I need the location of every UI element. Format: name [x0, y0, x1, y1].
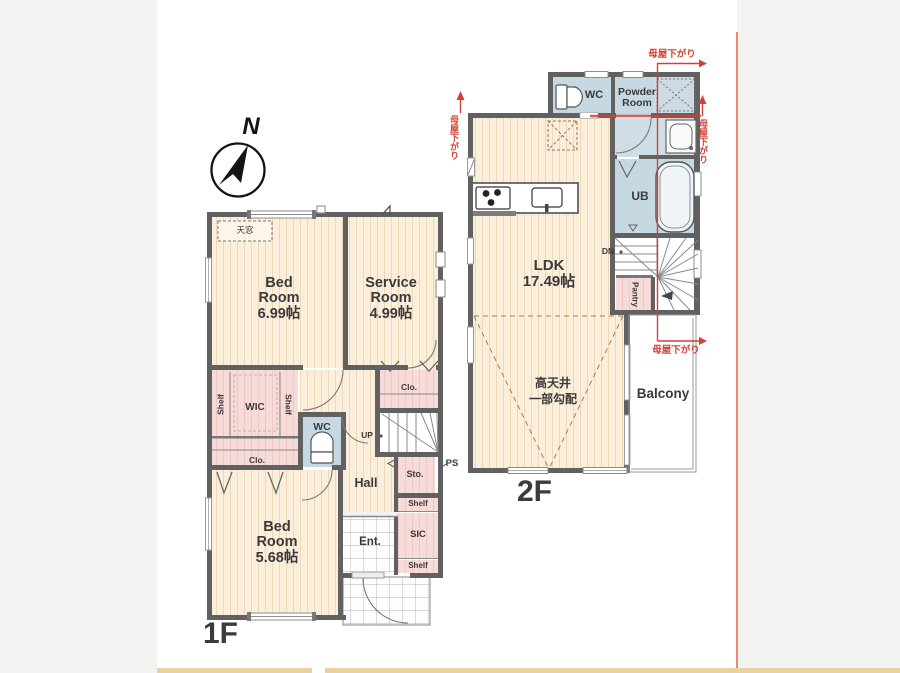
wic-label: WIC — [225, 400, 285, 417]
high-ceiling-line1: 高天井 — [535, 376, 571, 392]
service-room-label: Service Room 4.99帖 — [342, 260, 440, 338]
porch-step — [352, 572, 384, 578]
up-label: UP — [352, 429, 382, 442]
shelf-lower-label: Shelf — [392, 559, 444, 573]
ldk-size: 17.49帖 — [523, 274, 576, 290]
roof-lowering-top: 母屋下がり — [630, 48, 714, 62]
ldk-label: LDK 17.49帖 — [489, 251, 609, 297]
pantry-label: Pantry — [628, 273, 641, 317]
closet-right-label: Clo. — [379, 380, 439, 395]
roof-lowering-left: 母屋下がり — [448, 115, 461, 177]
hall-label: Hall — [336, 474, 396, 493]
high-ceiling-label: 高天井 一部勾配 — [493, 369, 613, 415]
pipe-space-label: PS — [437, 456, 467, 472]
skylight-label: 天窓 — [217, 222, 273, 239]
service-size: 4.99帖 — [370, 307, 413, 323]
right-edge-orange-line — [736, 32, 738, 672]
ldk-name: LDK — [534, 258, 565, 274]
powder-room-label: Powder Room — [609, 83, 665, 113]
bedroom1-size: 6.99帖 — [258, 307, 301, 323]
bedroom1-line1: Bed — [265, 276, 292, 292]
bathtub-icon — [656, 162, 694, 232]
shelf-right-label: Shelf — [282, 385, 295, 425]
entrance-label: Ent. — [343, 533, 397, 552]
wc1f-label: WC — [302, 420, 342, 436]
floor1-title: 1F — [203, 618, 283, 656]
sic-label: SIC — [392, 527, 444, 544]
compass-north-label: N — [236, 112, 266, 142]
hall-strip-area — [341, 370, 376, 455]
ub-label: UB — [619, 186, 661, 206]
shelf-upper-label: Shelf — [392, 497, 444, 511]
toilet-1f-icon — [311, 432, 333, 463]
closet-left-label: Clo. — [227, 453, 287, 468]
floor-plan-drawing — [0, 0, 900, 673]
roof-lowering-bottom: 母屋下がり — [634, 344, 718, 358]
bedroom2-size: 5.68帖 — [256, 551, 299, 567]
bedroom2-line1: Bed — [263, 520, 290, 536]
high-ceiling-line2: 一部勾配 — [529, 392, 577, 408]
service-line1: Service — [365, 276, 417, 292]
bottom-edge-tan-strip — [157, 668, 312, 673]
washing-machine-icon — [666, 120, 696, 153]
floor2-title: 2F — [517, 476, 597, 514]
bedroom1-line2: Room — [258, 291, 299, 307]
floor-plan-page: N 天窓 Bed Room 6.99帖 Service Room 4.99帖 S… — [0, 0, 900, 673]
service-line2: Room — [370, 291, 411, 307]
bedroom1-label: Bed Room 6.99帖 — [209, 260, 349, 338]
bedroom2-label: Bed Room 5.68帖 — [207, 504, 347, 582]
bottom-edge-tan-strip2 — [325, 668, 900, 673]
roof-lowering-right: 母屋下がり — [697, 119, 710, 181]
bedroom2-line2: Room — [256, 535, 297, 551]
stove-icon — [476, 187, 510, 209]
kitchen-counter — [471, 183, 578, 216]
storage-label: Sto. — [394, 466, 436, 483]
balcony-label: Balcony — [613, 384, 713, 404]
page-background — [0, 0, 900, 673]
